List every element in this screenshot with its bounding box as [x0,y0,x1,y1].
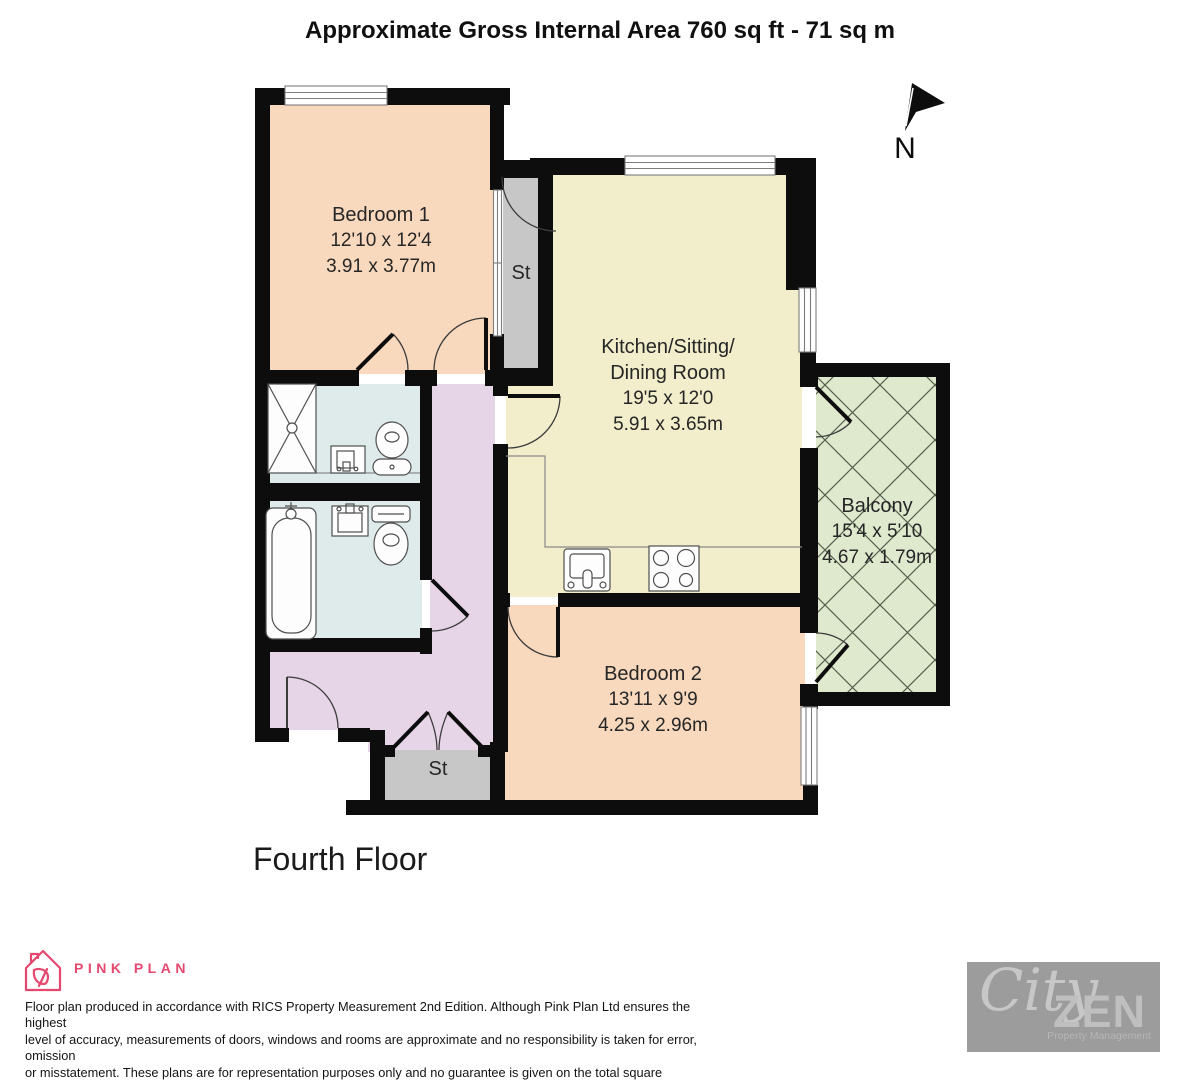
pink-plan-brand: PINK PLAN [24,946,424,994]
cityzen-tagline: Property Management [1047,1030,1151,1042]
stove-icon [649,546,699,591]
shower-icon [268,384,316,473]
storage-top-jamb [494,190,502,336]
kitchen-metric: 5.91 x 3.65m [601,412,734,438]
kitchen-imperial: 19'5 x 12'0 [601,386,734,412]
bedroom2-imperial: 13'11 x 9'9 [598,687,708,713]
bedroom2-metric: 4.25 x 2.96m [598,713,708,739]
kitchen-side-window [799,288,816,352]
pink-plan-wordmark: PINK PLAN [74,960,190,976]
north-label: N [894,132,916,166]
bedroom1-label: Bedroom 1 12'10 x 12'4 3.91 x 3.77m [326,202,436,280]
kitchen-top-window [625,156,775,175]
north-arrow-icon [905,83,945,131]
bedroom2-name: Bedroom 2 [598,661,708,687]
hallway-corridor-floor [430,384,495,752]
floor-plan-page: Approximate Gross Internal Area 760 sq f… [0,0,1191,1080]
toilet-1-icon [373,422,411,475]
balcony-label: Balcony 15'4 x 5'10 4.67 x 1.79m [822,493,932,571]
toilet-2-icon [372,506,410,565]
vanity-sink-icon [331,446,365,473]
floor-plan-drawing [0,0,1191,1080]
bedroom1-metric: 3.91 x 3.77m [326,254,436,280]
kitchen-sink-icon [564,549,610,591]
kitchen-label: Kitchen/Sitting/ Dining Room 19'5 x 12'0… [601,334,734,438]
kitchen-name-2: Dining Room [601,360,734,386]
page-title: Approximate Gross Internal Area 760 sq f… [305,17,895,45]
disclaimer-text: Floor plan produced in accordance with R… [25,999,703,1080]
bedroom1-window [285,86,387,105]
balcony-metric: 4.67 x 1.79m [822,545,932,571]
floor-label: Fourth Floor [253,841,427,878]
kitchen-name-1: Kitchen/Sitting/ [601,334,734,360]
balcony-name: Balcony [822,493,932,519]
bathroom-sink-icon [332,504,368,536]
bathtub-icon [266,502,316,639]
bedroom1-name: Bedroom 1 [326,202,436,228]
bedroom2-label: Bedroom 2 13'11 x 9'9 4.25 x 2.96m [598,661,708,739]
bedroom1-imperial: 12'10 x 12'4 [326,228,436,254]
balcony-imperial: 15'4 x 5'10 [822,519,932,545]
cityzen-logo: City ZEN Property Management [967,962,1160,1052]
storage-top-label: St [512,260,531,286]
storage-bottom-label: St [429,756,448,782]
bedroom2-window [801,707,817,785]
